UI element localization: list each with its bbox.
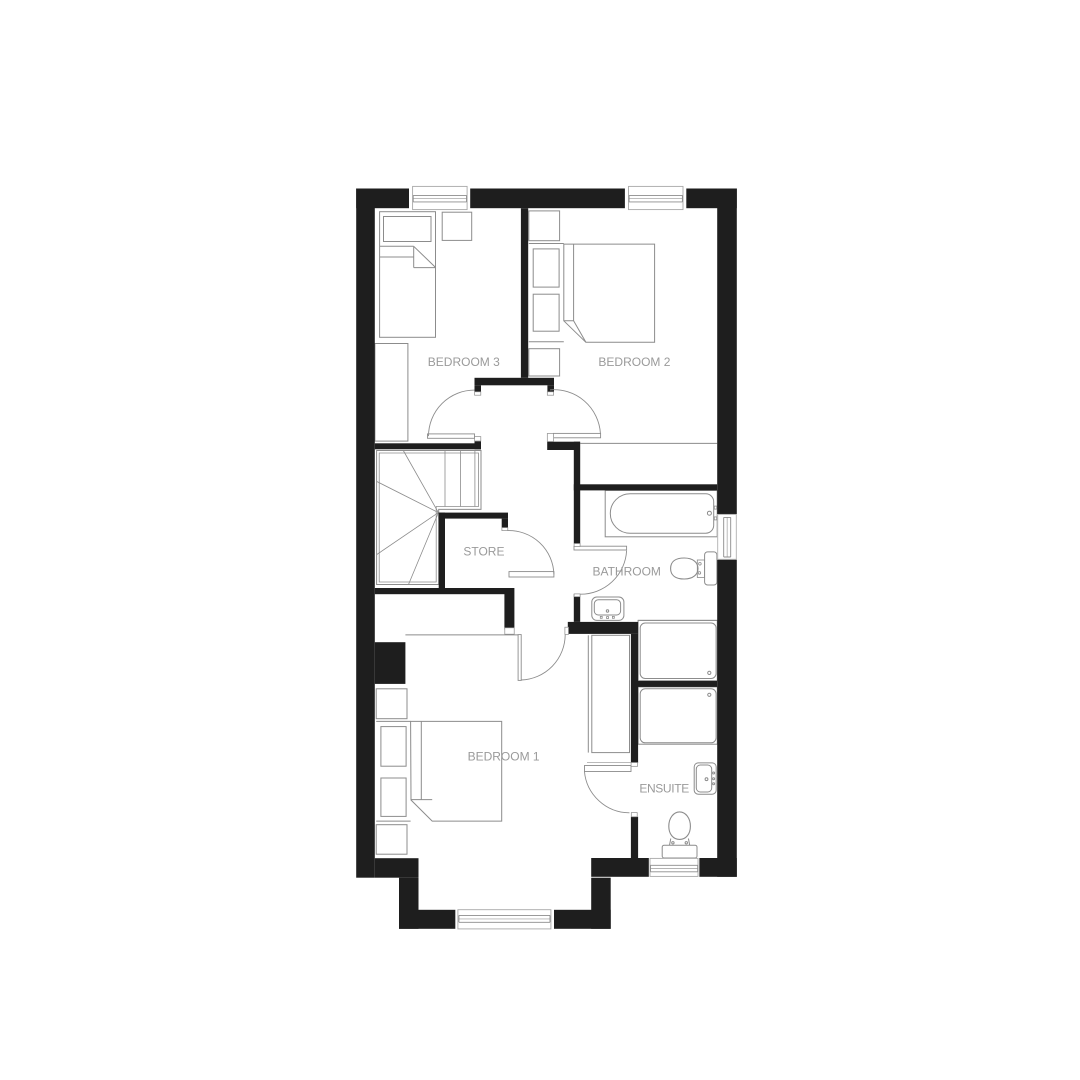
svg-text:ENSUITE: ENSUITE bbox=[639, 781, 689, 795]
svg-text:BEDROOM 1: BEDROOM 1 bbox=[468, 749, 540, 763]
svg-text:BEDROOM 3: BEDROOM 3 bbox=[428, 355, 500, 369]
svg-text:BEDROOM 2: BEDROOM 2 bbox=[598, 355, 670, 369]
svg-text:BATHROOM: BATHROOM bbox=[592, 565, 660, 579]
svg-text:STORE: STORE bbox=[463, 545, 504, 559]
